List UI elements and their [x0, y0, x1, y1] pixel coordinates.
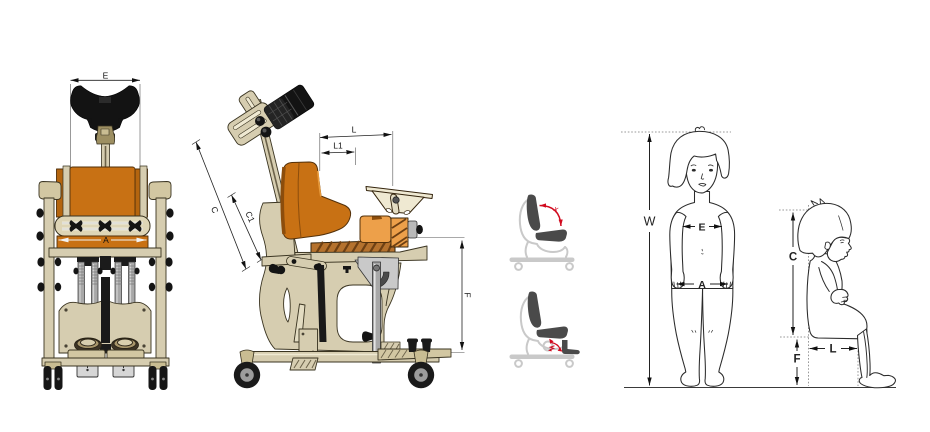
svg-text:L: L — [352, 125, 357, 135]
svg-text:E: E — [103, 71, 109, 81]
svg-text:A: A — [103, 235, 109, 245]
svg-text:L1: L1 — [333, 141, 343, 151]
svg-text:C: C — [789, 252, 797, 264]
svg-text:F: F — [793, 354, 800, 366]
svg-text:F: F — [463, 292, 473, 297]
svg-text:C: C — [209, 205, 221, 214]
svg-text:x: x — [552, 204, 560, 214]
svg-text:E: E — [698, 222, 705, 234]
svg-text:A: A — [698, 279, 706, 291]
svg-text:C1: C1 — [243, 210, 257, 224]
svg-text:W: W — [644, 215, 656, 229]
svg-text:L: L — [829, 344, 836, 356]
